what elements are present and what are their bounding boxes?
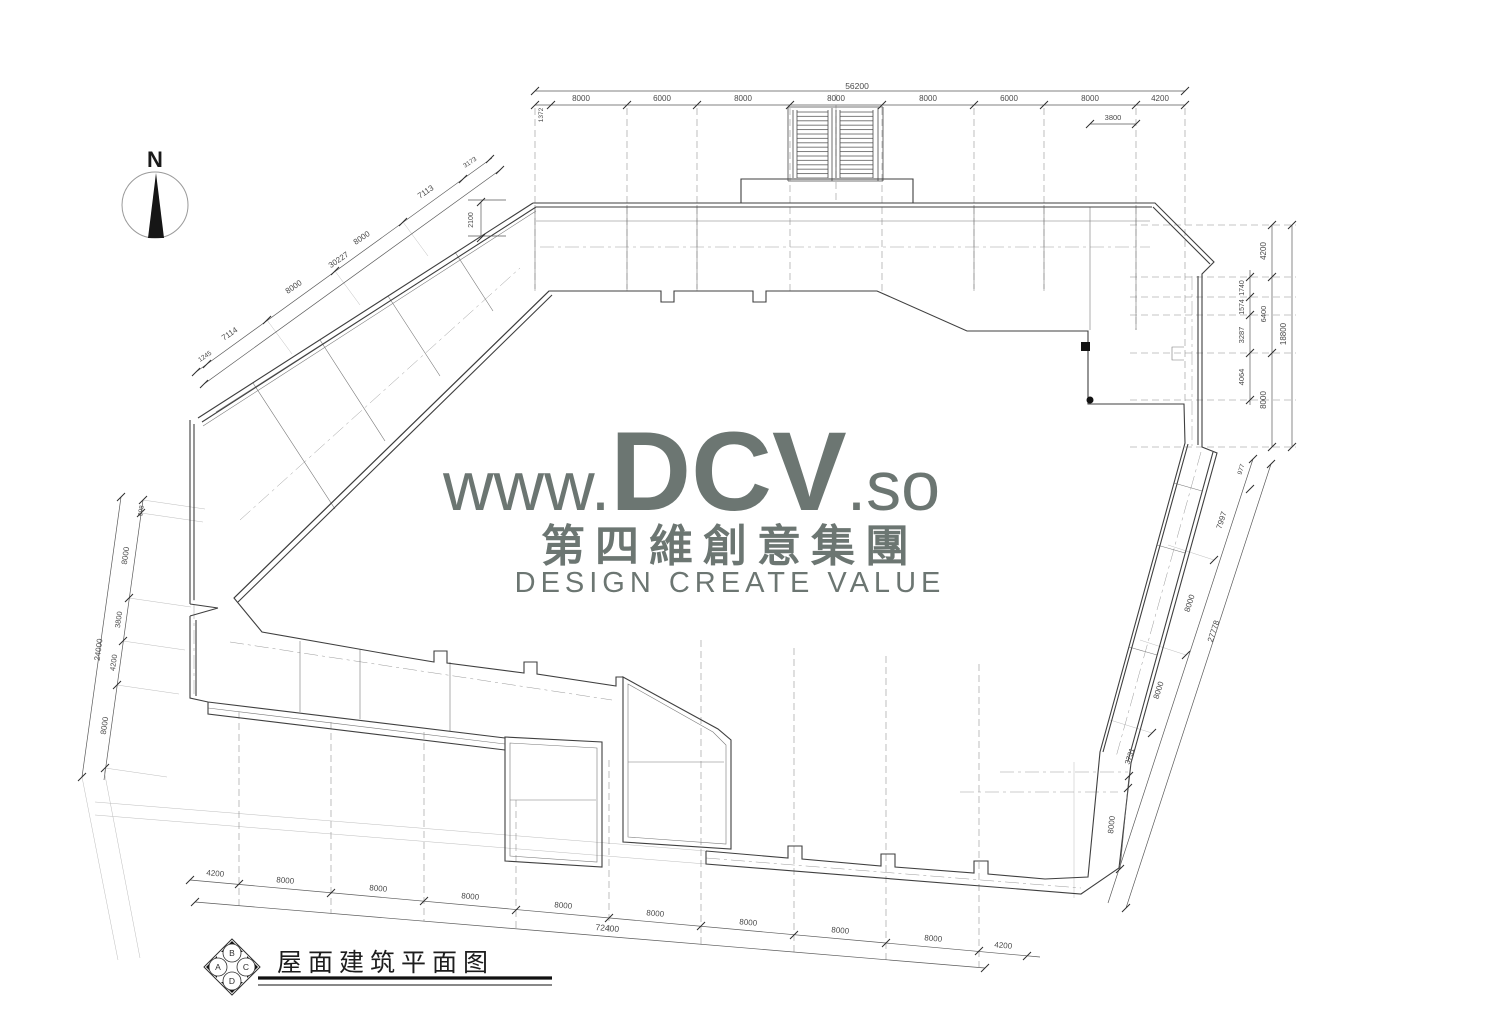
dimension-label: 3800 [113,611,124,629]
dimension-label: 8000 [352,229,372,247]
dimension-label: 7113 [416,183,436,200]
dimension-label: 6000 [1000,94,1018,103]
north-label: N [147,147,163,172]
dimension-label: 8000 [831,925,850,936]
dimension-label: 8000 [1106,815,1117,834]
dimension-label: 8000 [572,94,590,103]
dimension-label: 27778 [1206,619,1222,643]
watermark-url-suffix: .so [847,447,940,525]
watermark-tagline: DESIGN CREATE VALUE [515,567,946,599]
dimension-label: 8000 [276,875,295,886]
dimension-label: 7114 [220,325,240,342]
dimension-label: 8000 [461,891,480,902]
dimension-label: 8000 [827,94,845,103]
louver-panel-right [840,110,873,178]
bay-room [505,737,602,867]
dimension-label: 1740 [1239,280,1246,296]
grid-label-b: B [229,948,235,958]
dimension-label: 8000 [739,917,758,928]
dimension-label: 1372 [538,107,545,122]
column-marker-square [1081,342,1090,351]
dimension-label: 4200 [1151,94,1169,103]
dimension-label: 24000 [93,637,105,661]
dimension-label: 72400 [595,922,620,934]
dimension-label: 4200 [108,654,119,672]
watermark-company-name: 第四維創意集團 [541,522,919,571]
dimension-label: 3800 [1105,113,1122,122]
column-marker-dot [1087,397,1094,404]
dimension-label: 8000 [1081,94,1099,103]
dimension-label: 56200 [845,81,869,91]
cad-drawing-sheet: 5620080006000800080008000600080004200137… [0,0,1500,1034]
dimension-label: 2100 [468,212,475,228]
dimension-label: 3731 [1123,747,1137,766]
dimension-label: 8000 [284,278,304,296]
dimension-label: 7997 [1215,510,1229,530]
stair-tower [788,107,883,181]
dimension-label: 8000 [120,546,131,565]
drawing-title: 屋面建筑平面图 [277,949,494,977]
dimension-label: 8000 [1183,593,1197,613]
dimension-label: 3173 [462,156,478,170]
grid-label-c: C [243,962,249,972]
upper-left-wing [198,203,549,598]
grid-label-d: D [229,976,235,986]
watermark-url: www.DCV.so [442,409,940,534]
north-arrow: N [122,147,188,238]
dimension-label: 8000 [734,94,752,103]
floorplan-canvas: 5620080006000800080008000600080004200137… [0,0,1500,1034]
dimension-label: 4200 [994,940,1013,951]
dimension-label: 8000 [919,94,937,103]
title-block: A B C D 屋面建筑平面图 [204,939,552,995]
dimension-label: 6000 [653,94,671,103]
north-needle-icon [148,173,164,238]
dimension-label: 8000 [1259,391,1268,409]
dimension-label: 1574 [1239,299,1246,315]
dimension-label: 3287 [1237,327,1246,344]
dimension-label: 8000 [646,908,665,919]
grid-label-a: A [215,962,221,972]
dimension-label: 8000 [99,716,110,735]
louver-panel-left [797,110,828,178]
dimension-label: 18800 [1279,322,1288,345]
dimension-label: 977 [1237,463,1247,476]
dimension-label: 998 [137,505,145,517]
protruding-room [623,677,731,849]
watermark: www.DCV.so 第四維創意集團 DESIGN CREATE VALUE [442,409,945,599]
watermark-url-prefix: www. [442,447,610,525]
stair-platform [741,179,913,203]
watermark-brand: DCV [610,409,846,534]
dimension-label: 8000 [554,900,573,911]
dimension-label: 4064 [1237,369,1246,386]
dimension-label: 8000 [924,933,943,944]
dimension-label: 4200 [1259,242,1268,260]
dimension-label: 8000 [369,883,388,894]
dimension-label: 4200 [206,868,225,879]
dimension-label: 6400 [1259,306,1268,323]
